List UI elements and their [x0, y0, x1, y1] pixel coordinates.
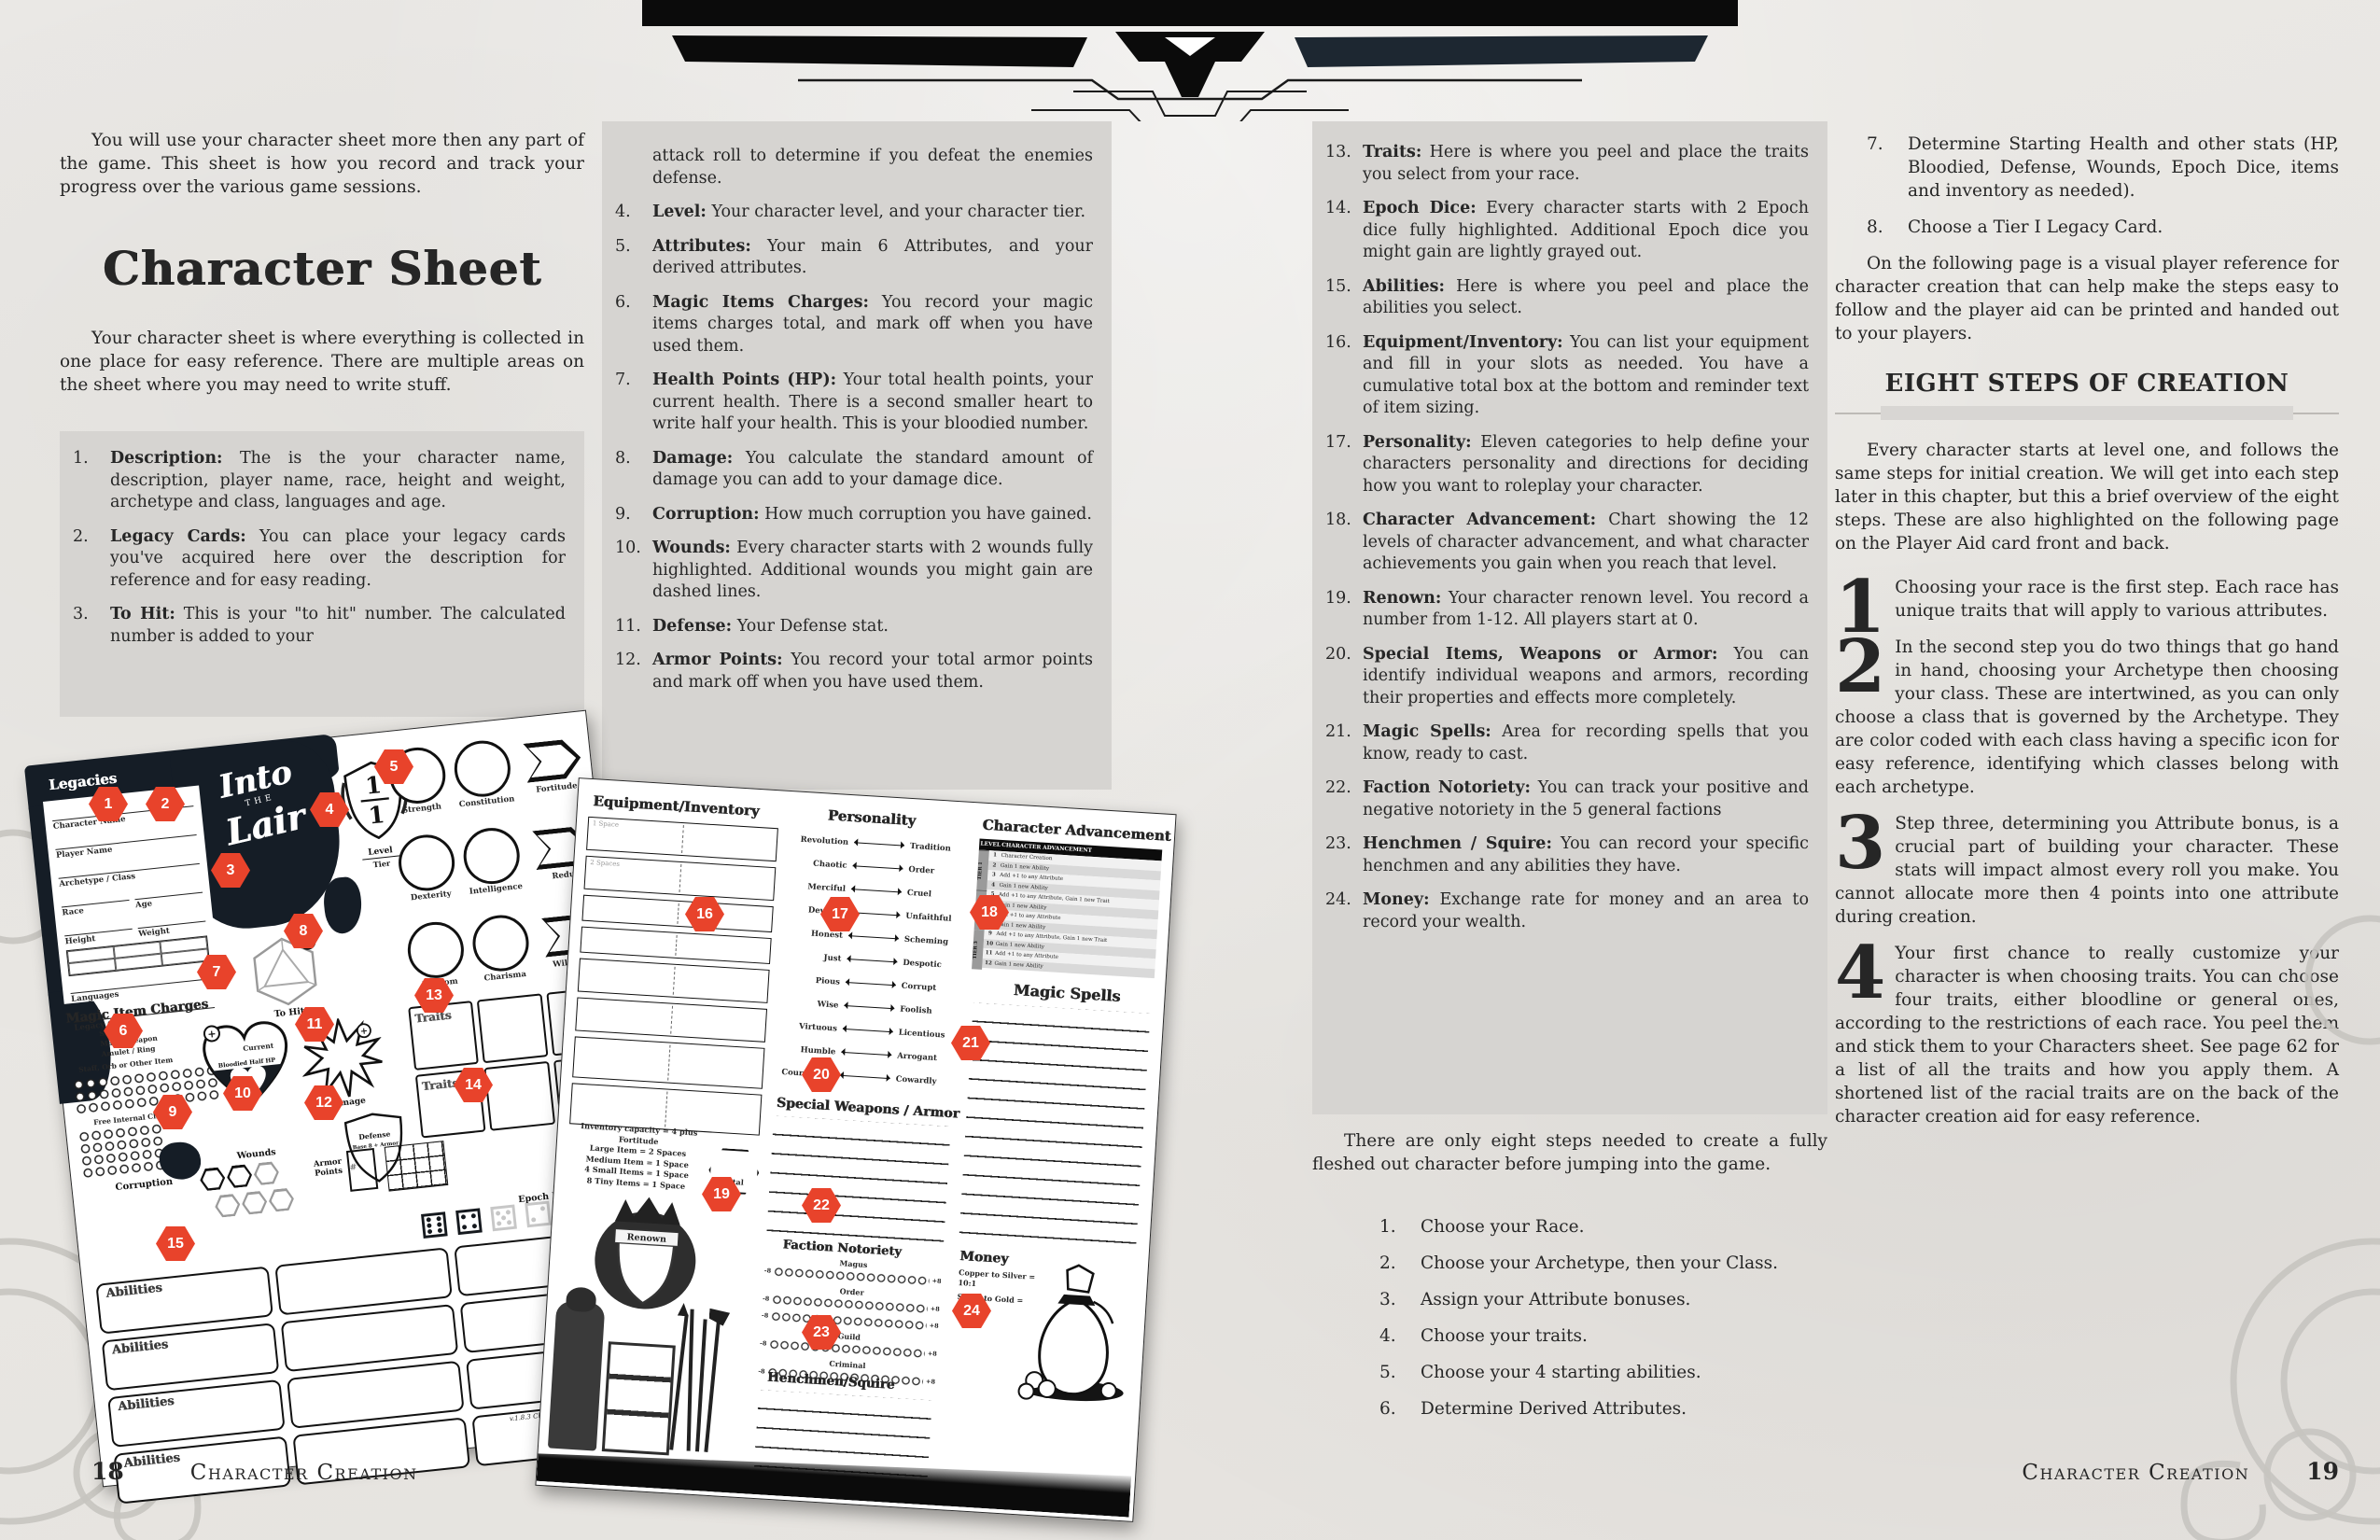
special-weapons-lines — [766, 1116, 950, 1242]
item-term: Description: — [110, 449, 223, 468]
section-title-rule — [1835, 406, 2339, 420]
corruption-label: Corruption — [115, 1177, 174, 1193]
item-number: 18. — [1325, 510, 1363, 576]
page-title: Character Sheet — [60, 241, 584, 296]
scale-min: -8 — [760, 1339, 767, 1347]
list-item: 8. Damage: You calculate the standard am… — [615, 448, 1093, 492]
equipment-slots: 1 Space 2 Spaces — [569, 817, 778, 1141]
step-item: 1. Choose your Race. — [1379, 1215, 1827, 1239]
list-item: 6. Magic Items Charges: You record your … — [615, 292, 1093, 358]
step-number: 8. — [1867, 216, 1908, 239]
item-text: How much corruption you have gained. — [764, 505, 1092, 524]
step-text: Choose your Race. — [1421, 1215, 1827, 1239]
adv-level: 2 — [988, 861, 1001, 871]
list-item: 18. Character Advancement: Chart showing… — [1325, 510, 1809, 576]
personality-right: Cruel — [907, 888, 967, 901]
item-number: 22. — [1325, 777, 1363, 821]
step-number: 1. — [1379, 1215, 1421, 1239]
item-term: Magic Spells: — [1363, 722, 1491, 741]
item-number: 17. — [1325, 432, 1363, 498]
step-text: Choose your Archetype, then your Class. — [1421, 1252, 1827, 1275]
abilities-label: Abilities — [111, 1337, 169, 1357]
page-number-18: 18 — [91, 1458, 124, 1485]
page-number-19: 19 — [2306, 1458, 2339, 1485]
adv-level: 4 — [987, 880, 1000, 890]
drop-cap-paragraph: 2 In the second step you do two things t… — [1835, 636, 2339, 799]
item-number: 1. — [73, 448, 110, 514]
personality-arrow — [840, 1075, 890, 1079]
list-item: 16. Equipment/Inventory: You can list yo… — [1325, 332, 1809, 420]
section-paragraph: Every character starts at level one, and… — [1835, 439, 2339, 555]
item-text: Here is where you peel and place the tra… — [1363, 143, 1809, 184]
personality-arrow — [853, 865, 903, 869]
step-number: 6. — [1379, 1397, 1421, 1421]
drop-cap-number: 2 — [1835, 641, 1885, 693]
step-number: 4. — [1379, 1324, 1421, 1348]
adv-text: Gain 1 new Ability — [994, 959, 1043, 972]
step-item: 5. Choose your 4 starting abilities. — [1379, 1361, 1827, 1384]
adv-level: 1 — [988, 850, 1001, 861]
following-page-paragraph: On the following page is a visual player… — [1835, 252, 2339, 345]
step-number: 5. — [1379, 1361, 1421, 1384]
list-item: 24. Money: Exchange rate for money and a… — [1325, 889, 1809, 933]
top-banner-ornament — [607, 0, 1773, 121]
item-number: 14. — [1325, 198, 1363, 264]
list-item: 17. Personality: Eleven categories to he… — [1325, 432, 1809, 498]
step-text: Choose your traits. — [1421, 1324, 1827, 1348]
list-item: 23. Henchmen / Squire: You can record yo… — [1325, 833, 1809, 877]
faction-row: Magus -8 +8 — [764, 1253, 943, 1287]
item-term: Renown: — [1363, 589, 1441, 608]
steps-list-1-6: 1. Choose your Race. 2. Choose your Arch… — [1312, 1215, 1827, 1434]
personality-arrow — [854, 842, 904, 846]
personality-right: Tradition — [910, 841, 970, 854]
item-term: Magic Items Charges: — [652, 293, 869, 312]
item-term: Armor Points: — [652, 651, 783, 669]
list-item: 4. Level: Your character level, and your… — [615, 202, 1093, 224]
list-item: 3. To Hit: This is your "to hit" number.… — [73, 604, 566, 648]
step-text: Determine Starting Health and other stat… — [1908, 133, 2339, 203]
item-term: Health Points (HP): — [652, 371, 836, 389]
personality-left: Virtuous — [777, 1020, 837, 1033]
item-term: Defense: — [652, 617, 732, 636]
list-item: 1. Description: The is the your characte… — [73, 448, 566, 514]
step-item: 8. Choose a Tier I Legacy Card. — [1867, 216, 2339, 239]
step-item: 6. Determine Derived Attributes. — [1379, 1397, 1827, 1421]
item-term: Faction Notoriety: — [1363, 778, 1531, 797]
item-number: 21. — [1325, 721, 1363, 765]
item-term: Character Advancement: — [1363, 511, 1596, 529]
footer-right: Character Creation 19 — [2022, 1458, 2339, 1485]
attribute-label: Strength — [388, 801, 456, 817]
step-number: 7. — [1867, 133, 1908, 203]
item-number: 20. — [1325, 644, 1363, 710]
adv-level: 9 — [984, 929, 997, 939]
attribute-label: Intelligence — [462, 881, 530, 897]
attribute-label: Charisma — [471, 969, 539, 985]
drop-cap-text: In the second step you do two things tha… — [1835, 637, 2339, 797]
item-number: 24. — [1325, 889, 1363, 933]
adv-level: 12 — [982, 958, 995, 968]
abilities-label: Abilities — [105, 1281, 163, 1301]
item-term: Damage: — [652, 449, 733, 468]
item3-continuation: attack roll to determine if you defeat t… — [652, 146, 1093, 189]
intro-paragraph: You will use your character sheet more t… — [60, 129, 584, 199]
adv-level: 3 — [987, 870, 1001, 880]
money-title: Money — [959, 1249, 1009, 1267]
item-number: 23. — [1325, 833, 1363, 877]
personality-arrow — [844, 1005, 894, 1009]
item-term: Level: — [652, 203, 707, 221]
item-text: Your character level, and your character… — [711, 203, 1085, 221]
item-number: 12. — [615, 650, 652, 693]
traits-label: Traits — [421, 1076, 458, 1093]
personality-arrow — [841, 1052, 891, 1056]
personality-right: Foolish — [900, 1004, 959, 1017]
item-term: Money: — [1363, 890, 1430, 909]
item-term: Henchmen / Squire: — [1363, 834, 1552, 853]
item-term: Wounds: — [652, 539, 731, 557]
item-term: Traits: — [1363, 143, 1421, 161]
step-number: 2. — [1379, 1252, 1421, 1275]
step-text: Choose a Tier I Legacy Card. — [1908, 216, 2339, 239]
description-fields-panel: Character Name Player Name Archetype / C… — [43, 785, 220, 1003]
list-item: 2. Legacy Cards: You can place your lega… — [73, 526, 566, 593]
footer-label-right: Character Creation — [2022, 1461, 2249, 1485]
abilities-label: Abilities — [117, 1394, 175, 1414]
list-item: 5. Attributes: Your main 6 Attributes, a… — [615, 236, 1093, 280]
item-text: This is your "to hit" number. The calcul… — [110, 605, 566, 646]
drop-cap-text: Choosing your race is the first step. Ea… — [1895, 578, 2339, 621]
step-text: Choose your 4 starting abilities. — [1421, 1361, 1827, 1384]
internal-charge-bubbles — [77, 1122, 168, 1180]
item-number: 8. — [615, 448, 652, 492]
item-text: Exchange rate for money and an area to r… — [1363, 890, 1809, 931]
numbered-box-1-3: 1. Description: The is the your characte… — [60, 431, 584, 717]
scale-max: +8 — [931, 1277, 941, 1285]
item-number: 16. — [1325, 332, 1363, 420]
corner-flourish-right — [2161, 821, 2380, 1540]
item-term: Attributes: — [652, 237, 751, 256]
personality-right: Arrogant — [897, 1051, 957, 1064]
space-label: 1 Space — [593, 819, 620, 829]
personality-arrow — [851, 889, 902, 892]
item-number: 19. — [1325, 588, 1363, 632]
item-term: Epoch Dice: — [1363, 199, 1477, 217]
scale-min: -8 — [758, 1367, 765, 1375]
list-item: 15. Abilities: Here is where you peel an… — [1325, 276, 1809, 320]
scale-max: +8 — [929, 1322, 938, 1330]
equipment-title: Equipment/Inventory — [593, 792, 760, 819]
footer-label-left: Character Creation — [190, 1461, 418, 1485]
drop-cap-number: 3 — [1835, 818, 1885, 870]
item-term: Personality: — [1363, 433, 1472, 452]
step-number: 3. — [1379, 1288, 1421, 1311]
step-text: Determine Derived Attributes. — [1421, 1397, 1827, 1421]
scale-min: -8 — [763, 1295, 770, 1302]
personality-left: Revolution — [789, 834, 848, 847]
faction-row: Guild -8 +8 — [760, 1326, 938, 1360]
character-sheet-back: Equipment/Inventory 1 Space 2 Spaces Inv… — [535, 777, 1176, 1522]
item-number: 2. — [73, 526, 110, 593]
scale-min: -8 — [764, 1267, 772, 1274]
attribute-label: Constitution — [453, 794, 521, 810]
personality-right: Licentious — [898, 1028, 958, 1041]
personality-arrow — [847, 959, 897, 962]
step-item: 4. Choose your traits. — [1379, 1324, 1827, 1348]
item-number: 13. — [1325, 142, 1363, 186]
item-number: 4. — [615, 202, 652, 224]
step-text: Assign your Attribute bonuses. — [1421, 1288, 1827, 1311]
inventory-capacity-notes: Inventory capacity = 4 plus Fortitude La… — [566, 1120, 709, 1193]
item-term: Special Items, Weapons or Armor: — [1363, 645, 1717, 664]
scale-max: +8 — [928, 1350, 937, 1358]
list-item: 12. Armor Points: You record your total … — [615, 650, 1093, 693]
notoriety-circles — [771, 1310, 927, 1330]
item-number: 6. — [615, 292, 652, 358]
numbered-box-4-12: attack roll to determine if you defeat t… — [602, 121, 1112, 790]
personality-left: Just — [781, 950, 841, 963]
personality-rows: Revolution Tradition Chaotic Order Merci… — [774, 827, 970, 1094]
scale-max: +8 — [926, 1378, 935, 1386]
item-term: Abilities: — [1363, 277, 1445, 296]
personality-arrow — [848, 935, 899, 939]
item-number: 3. — [73, 604, 110, 648]
item-number: 11. — [615, 616, 652, 638]
item-term: Legacy Cards: — [110, 527, 246, 546]
item-number: 9. — [615, 504, 652, 526]
renown-crest-icon: Renown — [586, 1187, 706, 1317]
list-item: 11. Defense: Your Defense stat. — [615, 616, 1093, 638]
numbered-box-13-24: 13. Traits: Here is where you peel and p… — [1312, 121, 1827, 1114]
svg-text:+: + — [359, 1026, 368, 1037]
personality-left: Merciful — [786, 880, 846, 893]
item-number: 5. — [615, 236, 652, 280]
personality-right: Order — [908, 864, 968, 877]
item-text: Your Defense stat. — [737, 617, 889, 636]
personality-left: Wise — [778, 997, 838, 1010]
personality-left: Pious — [780, 973, 840, 987]
list-item: 14. Epoch Dice: Every character starts w… — [1325, 198, 1809, 264]
item-term: Corruption: — [652, 505, 760, 524]
adv-level: 11 — [983, 948, 996, 959]
item-term: To Hit: — [110, 605, 175, 623]
magic-spells-title: Magic Spells — [1013, 981, 1121, 1005]
drop-cap-number: 4 — [1835, 947, 1885, 1000]
list-item: 9. Corruption: How much corruption you h… — [615, 504, 1093, 526]
faction-row: Order -8 +8 — [763, 1281, 941, 1315]
personality-right: Cowardly — [895, 1074, 955, 1087]
eight-steps-intro: There are only eight steps needed to cre… — [1312, 1129, 1827, 1176]
steps-list-7-8: 7. Determine Starting Health and other s… — [1835, 133, 2339, 239]
adv-level: 10 — [983, 938, 996, 948]
list-item: 20. Special Items, Weapons or Armor: You… — [1325, 644, 1809, 710]
armor-points-grid: # — [346, 1141, 449, 1196]
personality-right: Unfaithful — [905, 911, 965, 924]
item-number: 7. — [615, 370, 652, 436]
book-spread: You will use your character sheet more t… — [0, 0, 2380, 1540]
personality-left: Chaotic — [787, 857, 847, 870]
personality-left: Humble — [776, 1043, 835, 1057]
svg-text:1: 1 — [367, 801, 385, 830]
personality-right: Corrupt — [902, 981, 961, 994]
svg-text:+: + — [207, 1028, 217, 1041]
list-item: 21. Magic Spells: Area for recording spe… — [1325, 721, 1809, 765]
personality-arrow — [843, 1029, 893, 1032]
list-item: 7. Health Points (HP): Your total health… — [615, 370, 1093, 436]
footer-left: 18 Character Creation — [91, 1458, 418, 1485]
list-item: 10. Wounds: Every character starts with … — [615, 538, 1093, 604]
item-number: 10. — [615, 538, 652, 604]
list-item: 13. Traits: Here is where you peel and p… — [1325, 142, 1809, 186]
knight-illustration — [542, 1300, 752, 1462]
personality-right: Scheming — [904, 934, 964, 947]
drop-cap-paragraph: 1 Choosing your race is the first step. … — [1835, 576, 2339, 623]
item-term: Equipment/Inventory: — [1363, 333, 1563, 352]
attribute-label: Dexterity — [398, 888, 466, 903]
item-number: 15. — [1325, 276, 1363, 320]
step-item: 2. Choose your Archetype, then your Clas… — [1379, 1252, 1827, 1275]
step-item: 7. Determine Starting Health and other s… — [1867, 133, 2339, 203]
personality-title: Personality — [827, 807, 916, 830]
section-title: EIGHT STEPS OF CREATION — [1835, 370, 2339, 398]
list-item: 22. Faction Notoriety: You can track you… — [1325, 777, 1809, 821]
personality-arrow — [846, 982, 896, 986]
space-label: 2 Spaces — [590, 859, 620, 868]
scale-min: -8 — [762, 1311, 769, 1319]
money-bag-icon — [1015, 1260, 1135, 1407]
armor-points-label: Armor Points — [293, 1157, 343, 1181]
list-item: 19. Renown: Your character renown level.… — [1325, 588, 1809, 632]
armor-hash: # — [349, 1163, 357, 1173]
personality-right: Despotic — [903, 958, 962, 971]
scale-max: +8 — [931, 1305, 940, 1313]
character-sheet-paragraph: Your character sheet is where everything… — [60, 327, 584, 397]
step-item: 3. Assign your Attribute bonuses. — [1379, 1288, 1827, 1311]
